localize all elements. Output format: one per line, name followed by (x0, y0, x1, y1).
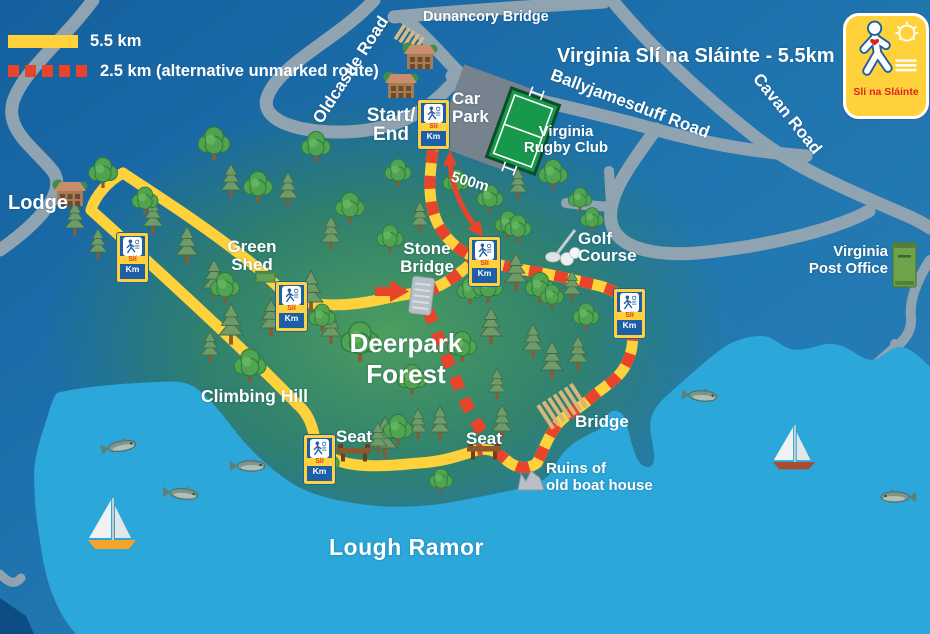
walking-figure-icon (282, 286, 301, 305)
walking-figure-icon (424, 104, 443, 123)
house-icon (384, 72, 419, 99)
label-seat-left: Seat (336, 427, 372, 447)
alt-route-swatch (8, 65, 88, 77)
sign-km-text: Km (623, 320, 637, 331)
label-bridge: Bridge (575, 412, 629, 432)
label-post-office: Virginia Post Office (798, 243, 888, 278)
walking-figure-icon (620, 293, 639, 312)
label-stone-bridge: Stone Bridge (393, 240, 461, 276)
km-marker-sign-start: Slí Km (418, 100, 449, 149)
legend-main-label: 5.5 km (90, 32, 141, 51)
label-lough-ramor: Lough Ramor (329, 534, 484, 561)
sign-sli-text: Slí (421, 123, 446, 131)
km-marker-sign-1: Slí Km (117, 233, 148, 282)
km-marker-sign-4: Slí Km (614, 289, 645, 338)
legend-alt-route: 2.5 km (alternative unmarked route) (8, 60, 379, 82)
walking-figure-icon (475, 241, 494, 260)
label-car-park: Car Park (452, 90, 489, 126)
sign-km-text: Km (285, 313, 299, 324)
label-ruins: Ruins of old boat house (546, 460, 653, 495)
road-branch (609, 171, 611, 205)
sign-km-text: Km (478, 268, 492, 279)
sign-km-text: Km (313, 466, 327, 477)
label-deerpark-forest: Deerpark Forest (328, 328, 484, 389)
logo-walking-figure-icon (848, 16, 924, 88)
sign-sli-text: Slí (120, 256, 145, 264)
label-climbing-hill: Climbing Hill (201, 386, 308, 407)
virginia-sli-na-slainte-map: Virginia Slí na Sláinte - 5.5km Dunancor… (0, 0, 930, 634)
km-marker-sign-3: Slí Km (469, 237, 500, 286)
label-seat-right: Seat (466, 429, 502, 449)
km-marker-sign-5: Slí Km (304, 435, 335, 484)
sign-sli-text: Slí (279, 305, 304, 313)
sign-sli-text: Slí (617, 312, 642, 320)
sign-sli-text: Slí (472, 260, 497, 268)
legend-main-route: 5.5 km (8, 30, 379, 52)
label-green-shed: Green Shed (220, 238, 284, 274)
map-title: Virginia Slí na Sláinte - 5.5km (557, 45, 835, 68)
sign-km-text: Km (126, 264, 140, 275)
label-start-end: Start/ End (366, 107, 416, 144)
label-rugby-club: Virginia Rugby Club (516, 124, 616, 156)
label-lodge: Lodge (8, 192, 68, 215)
legend: 5.5 km 2.5 km (alternative unmarked rout… (8, 30, 379, 90)
walking-figure-icon (123, 237, 142, 256)
logo-text: Slí na Sláinte (853, 86, 918, 98)
stone-bridge-icon (408, 276, 434, 315)
sli-na-slainte-logo: Slí na Sláinte (843, 13, 929, 119)
post-box-icon (892, 243, 917, 287)
km-marker-sign-2: Slí Km (276, 282, 307, 331)
sign-sli-text: Slí (307, 458, 332, 466)
legend-alt-label: 2.5 km (alternative unmarked route) (100, 62, 379, 81)
main-route-swatch (8, 35, 78, 48)
road-label-dunancory-bridge: Dunancory Bridge (423, 9, 549, 25)
house-icon (403, 43, 438, 70)
sign-km-text: Km (427, 131, 441, 142)
label-golf-course: Golf Course (578, 230, 637, 264)
walking-figure-icon (310, 439, 329, 458)
